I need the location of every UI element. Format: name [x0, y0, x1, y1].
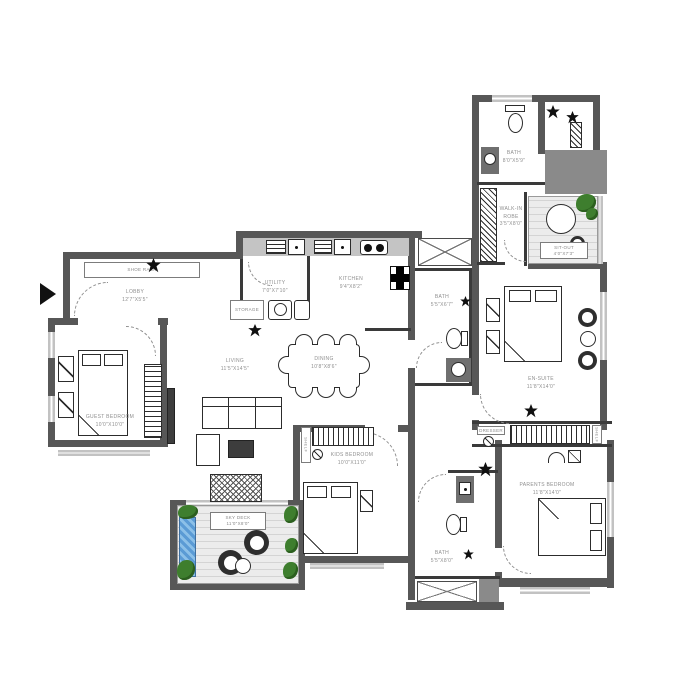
room-name-robe: WALK-IN ROBE: [494, 206, 528, 221]
chair: [295, 387, 313, 398]
wall: [477, 262, 505, 265]
deck-table: [235, 558, 251, 574]
room-label-utility: UTILITY 7'0"X7'10": [248, 280, 302, 295]
room-name-utility: UTILITY: [248, 280, 302, 288]
pillow: [331, 486, 351, 498]
chair: [339, 387, 357, 398]
wall: [236, 231, 422, 238]
drainboard: [314, 240, 332, 254]
wall: [593, 95, 600, 155]
side-table: [580, 331, 596, 347]
floor-plan: SHOE RACK LOBBY 12'7"X5'5" GUEST BEDROOM…: [0, 0, 700, 700]
window: [607, 482, 614, 537]
window: [520, 587, 590, 594]
pillow: [590, 530, 602, 551]
wall: [415, 383, 472, 386]
rug: [210, 474, 262, 502]
room-label-living: LIVING 11'5"X14'5": [200, 358, 270, 373]
shelf-label-kids: SHELF: [301, 427, 311, 463]
round-table: [546, 204, 576, 234]
room-dim-robe: 3'5"X8'0": [494, 221, 528, 229]
window: [310, 563, 384, 569]
room-name-kids: KIDS BEDROOM: [316, 452, 388, 460]
wall: [408, 368, 415, 600]
shelf-label-parents: SHELF: [592, 425, 602, 444]
side-table: [360, 490, 373, 512]
room-name-living: LIVING: [200, 358, 270, 366]
wall: [365, 328, 411, 331]
blanket-fold: [304, 533, 324, 553]
chair: [317, 334, 335, 345]
coffee-table: [228, 440, 254, 458]
blanket-fold: [505, 341, 525, 361]
room-dim-ensuite: 11'8"X14'0": [506, 384, 576, 392]
toilet-icon: [446, 328, 462, 349]
side-table: [486, 298, 500, 322]
service-ledge: [479, 579, 499, 604]
duct-column: [390, 266, 410, 290]
room-dim-skydeck: 11'0"X8'0": [226, 521, 249, 527]
chair: [317, 387, 335, 398]
shoe-rack: SHOE RACK: [84, 262, 200, 278]
room-name-parents: PARENTS BEDROOM: [502, 482, 592, 490]
pillow: [82, 354, 101, 366]
shaft: [417, 581, 477, 602]
room-label-bath-top: BATH 8'0"X5'9": [492, 150, 536, 165]
room-name-bath-top: BATH: [492, 150, 536, 158]
room-name-kitchen: KITCHEN: [322, 276, 380, 284]
room-label-bath-bottom: BATH 5'5"X8'0": [420, 550, 464, 565]
room-label-parents: PARENTS BEDROOM 11'8"X14'0": [502, 482, 592, 497]
room-dim-living: 11'5"X14'5": [200, 366, 270, 374]
wall: [170, 500, 177, 590]
room-label-sitout: SIT-OUT 4'0"X7'3": [540, 242, 588, 259]
wall: [472, 270, 479, 395]
window: [58, 450, 150, 456]
washer-drum: [274, 303, 287, 316]
toilet-icon: [508, 113, 523, 133]
chair: [359, 356, 370, 374]
room-name-dining: DINING: [293, 356, 355, 364]
window: [48, 396, 55, 422]
wall: [406, 602, 504, 610]
side-table: [486, 330, 500, 354]
linen-shelf: [570, 122, 582, 148]
room-label-lobby: LOBBY 12'7"X5'5": [100, 289, 170, 304]
room-name-bath-bottom: BATH: [420, 550, 464, 558]
cabinet: [294, 300, 310, 320]
room-label-kids: KIDS BEDROOM 10'0"X11'0": [316, 452, 388, 467]
pillow: [307, 486, 327, 498]
room-label-kitchen: KITCHEN 9'4"X8'2": [322, 276, 380, 291]
pillow: [590, 503, 602, 524]
plant-icon: [546, 105, 560, 119]
wall: [63, 252, 243, 259]
wall: [538, 102, 545, 154]
window: [492, 95, 532, 102]
toilet-icon: [446, 514, 461, 535]
wall: [63, 252, 70, 324]
blanket-fold: [539, 499, 559, 519]
room-dim-guest: 10'0"X10'0": [70, 422, 150, 430]
door-arc-bath-mid: [416, 342, 442, 368]
pillow: [509, 290, 531, 302]
room-label-skydeck: SKY DECK 11'0"X8'0": [210, 512, 266, 530]
wall: [48, 440, 168, 447]
plant-icon: [524, 404, 538, 418]
wardrobe-parents: [510, 425, 590, 444]
service-ledge: [545, 150, 607, 194]
room-label-dining: DINING 10'8"X8'6": [293, 356, 355, 371]
chair: [278, 356, 289, 374]
toilet-tank: [460, 517, 467, 532]
sofa-seam: [203, 406, 281, 407]
wall: [495, 578, 614, 587]
room-name-guest: GUEST BEDROOM: [70, 414, 150, 422]
hob-icon: [360, 240, 388, 255]
sink-icon: [334, 239, 351, 255]
wall: [415, 268, 472, 271]
wall: [472, 421, 612, 424]
basin-icon: [459, 482, 471, 495]
plant-icon: [248, 324, 262, 337]
chair: [578, 308, 597, 327]
sofa-seam: [255, 398, 256, 428]
chair: [339, 334, 357, 345]
side-table: [568, 450, 581, 463]
pillow: [104, 354, 123, 366]
room-label-guest: GUEST BEDROOM 10'0"X10'0": [70, 414, 150, 429]
toilet-tank: [461, 331, 468, 346]
room-label-ensuite: EN-SUITE 11'8"X14'0": [506, 376, 576, 391]
room-dim-lobby: 12'7"X5'5": [100, 297, 170, 305]
room-dim-kids: 10'0"X11'0": [316, 460, 388, 468]
room-label-robe: WALK-IN ROBE 3'5"X8'0": [494, 206, 528, 229]
window: [48, 332, 55, 358]
door-arc-parents: [503, 546, 531, 574]
room-dim-dining: 10'8"X8'6": [293, 364, 355, 372]
wall: [448, 470, 498, 473]
wall: [293, 556, 415, 563]
lounge-chair: [244, 530, 269, 555]
window: [600, 292, 607, 360]
dresser: DRESSER: [477, 426, 505, 435]
armchair: [196, 434, 220, 466]
shower-mixer-icon: [463, 549, 474, 560]
room-name-bath-mid: BATH: [420, 294, 464, 302]
tv-console: [167, 388, 175, 444]
pillow: [535, 290, 557, 302]
room-dim-parents: 11'8"X14'0": [502, 490, 592, 498]
door-arc-ensuite: [480, 394, 510, 424]
room-dim-kitchen: 9'4"X8'2": [322, 284, 380, 292]
sink-icon: [288, 239, 305, 255]
wall: [170, 583, 305, 590]
toilet-tank: [505, 105, 525, 112]
room-dim-bath-mid: 5'5"X6'7": [420, 302, 464, 310]
room-name-ensuite: EN-SUITE: [506, 376, 576, 384]
door-arc-robe: [504, 240, 526, 262]
wall: [477, 182, 545, 185]
wall: [495, 440, 502, 548]
chair: [295, 334, 313, 345]
sofa: [202, 397, 282, 429]
chair: [548, 452, 565, 463]
entry-arrow: [40, 283, 56, 305]
wardrobe-kids: [312, 427, 374, 446]
drainboard: [266, 240, 286, 254]
storage-cabinet: STORAGE: [230, 300, 264, 320]
chair: [578, 351, 597, 370]
door-arc-guest: [126, 326, 156, 356]
side-table: [58, 356, 74, 382]
room-dim-bath-top: 8'0"X5'9": [492, 158, 536, 166]
room-name-lobby: LOBBY: [100, 289, 170, 297]
room-dim-bath-bottom: 5'5"X8'0": [420, 558, 464, 566]
basin-icon: [451, 362, 466, 377]
door-arc-bath-bottom: [418, 474, 446, 502]
shaft: [418, 238, 472, 266]
sofa-seam: [228, 398, 229, 428]
stool: [483, 436, 494, 447]
room-dim-sitout: 4'0"X7'3": [554, 251, 575, 257]
room-dim-utility: 7'0"X7'10": [248, 288, 302, 296]
room-label-bath-mid: BATH 5'5"X6'7": [420, 294, 464, 309]
